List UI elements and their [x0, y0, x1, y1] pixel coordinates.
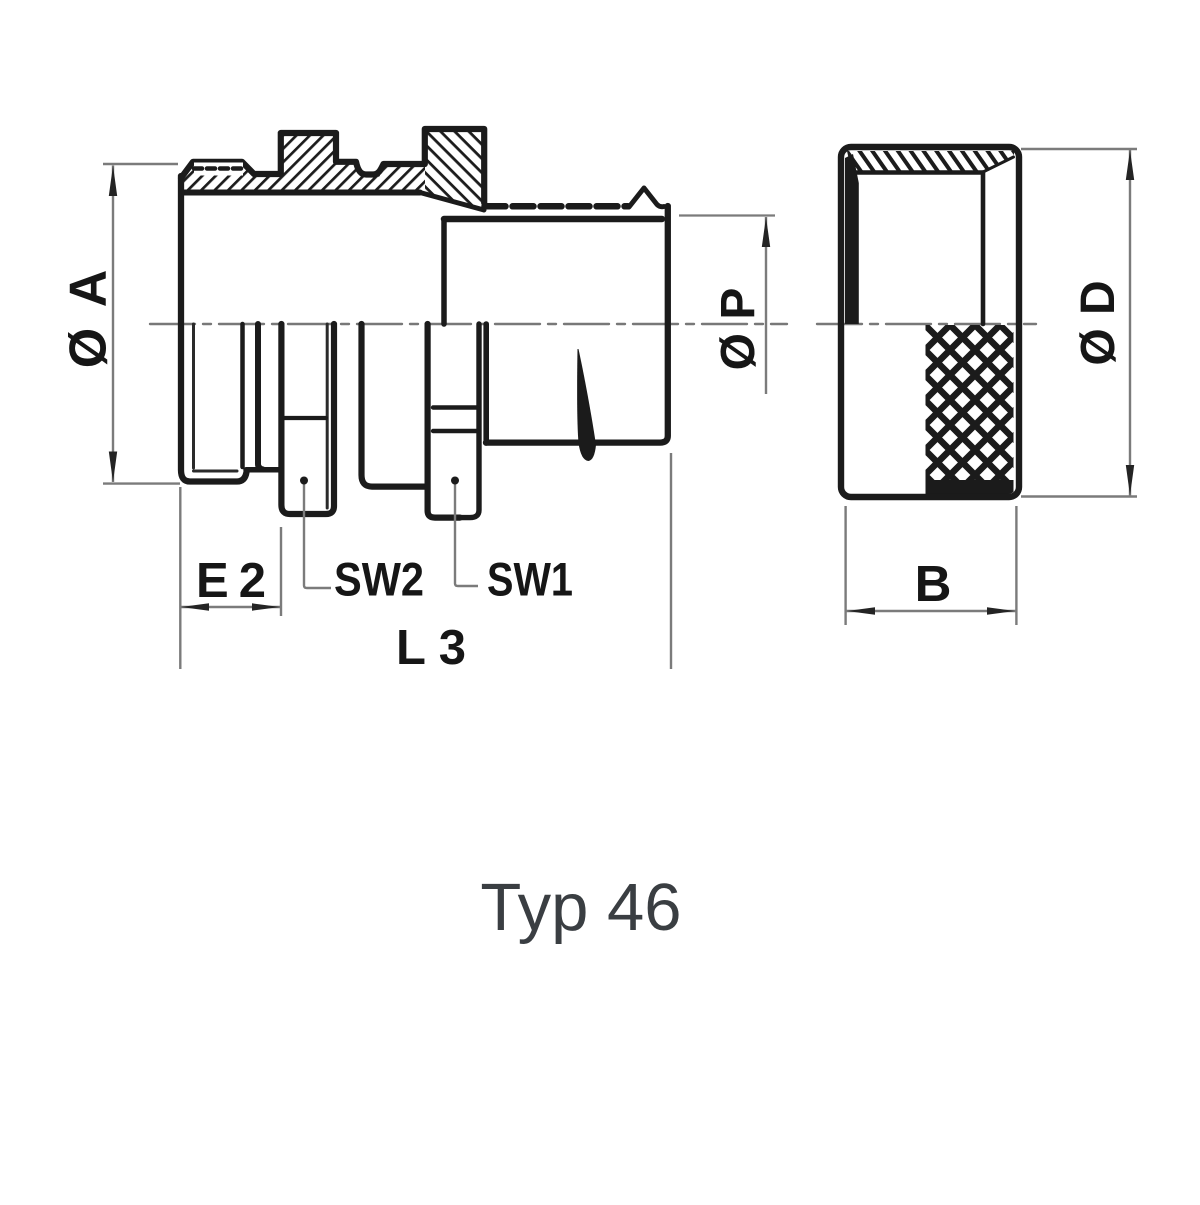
svg-text:Ø D: Ø D [1072, 280, 1125, 365]
svg-text:Typ 46: Typ 46 [480, 870, 681, 945]
svg-text:SW1: SW1 [487, 553, 573, 606]
svg-text:SW2: SW2 [334, 553, 424, 606]
svg-text:L 3: L 3 [396, 621, 466, 675]
svg-text:E 2: E 2 [196, 554, 266, 608]
svg-text:Ø A: Ø A [60, 266, 118, 369]
svg-text:Ø P: Ø P [712, 288, 765, 371]
svg-text:B: B [915, 555, 952, 612]
